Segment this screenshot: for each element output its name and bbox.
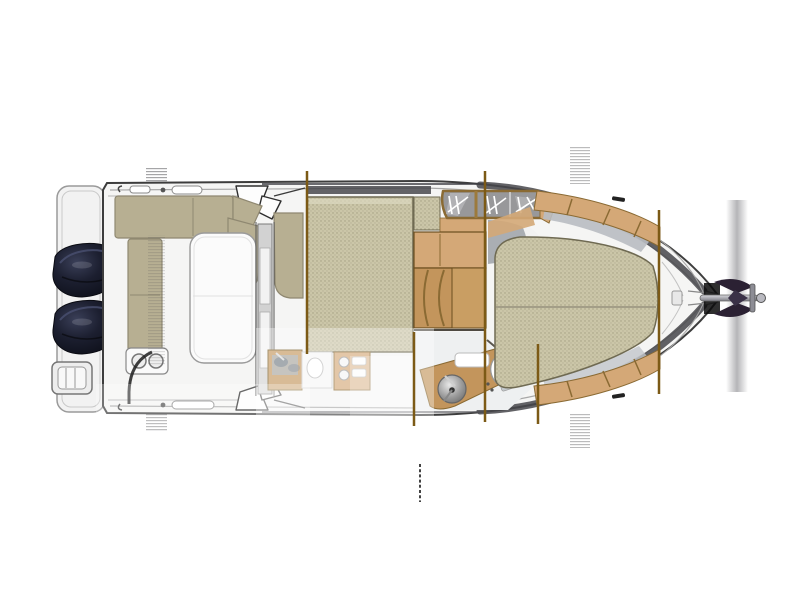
companionway-steps — [414, 218, 486, 330]
wheelhouse-aft-bench — [274, 213, 303, 298]
boarding-ladder — [52, 362, 92, 394]
floor-plan-canvas — [0, 0, 800, 600]
render-streak-stern-overlay — [148, 235, 165, 365]
cockpit-table — [190, 233, 256, 363]
boat-floor-plan — [0, 0, 800, 600]
washbasin — [438, 375, 466, 403]
cockpit-side-bench — [115, 196, 233, 238]
